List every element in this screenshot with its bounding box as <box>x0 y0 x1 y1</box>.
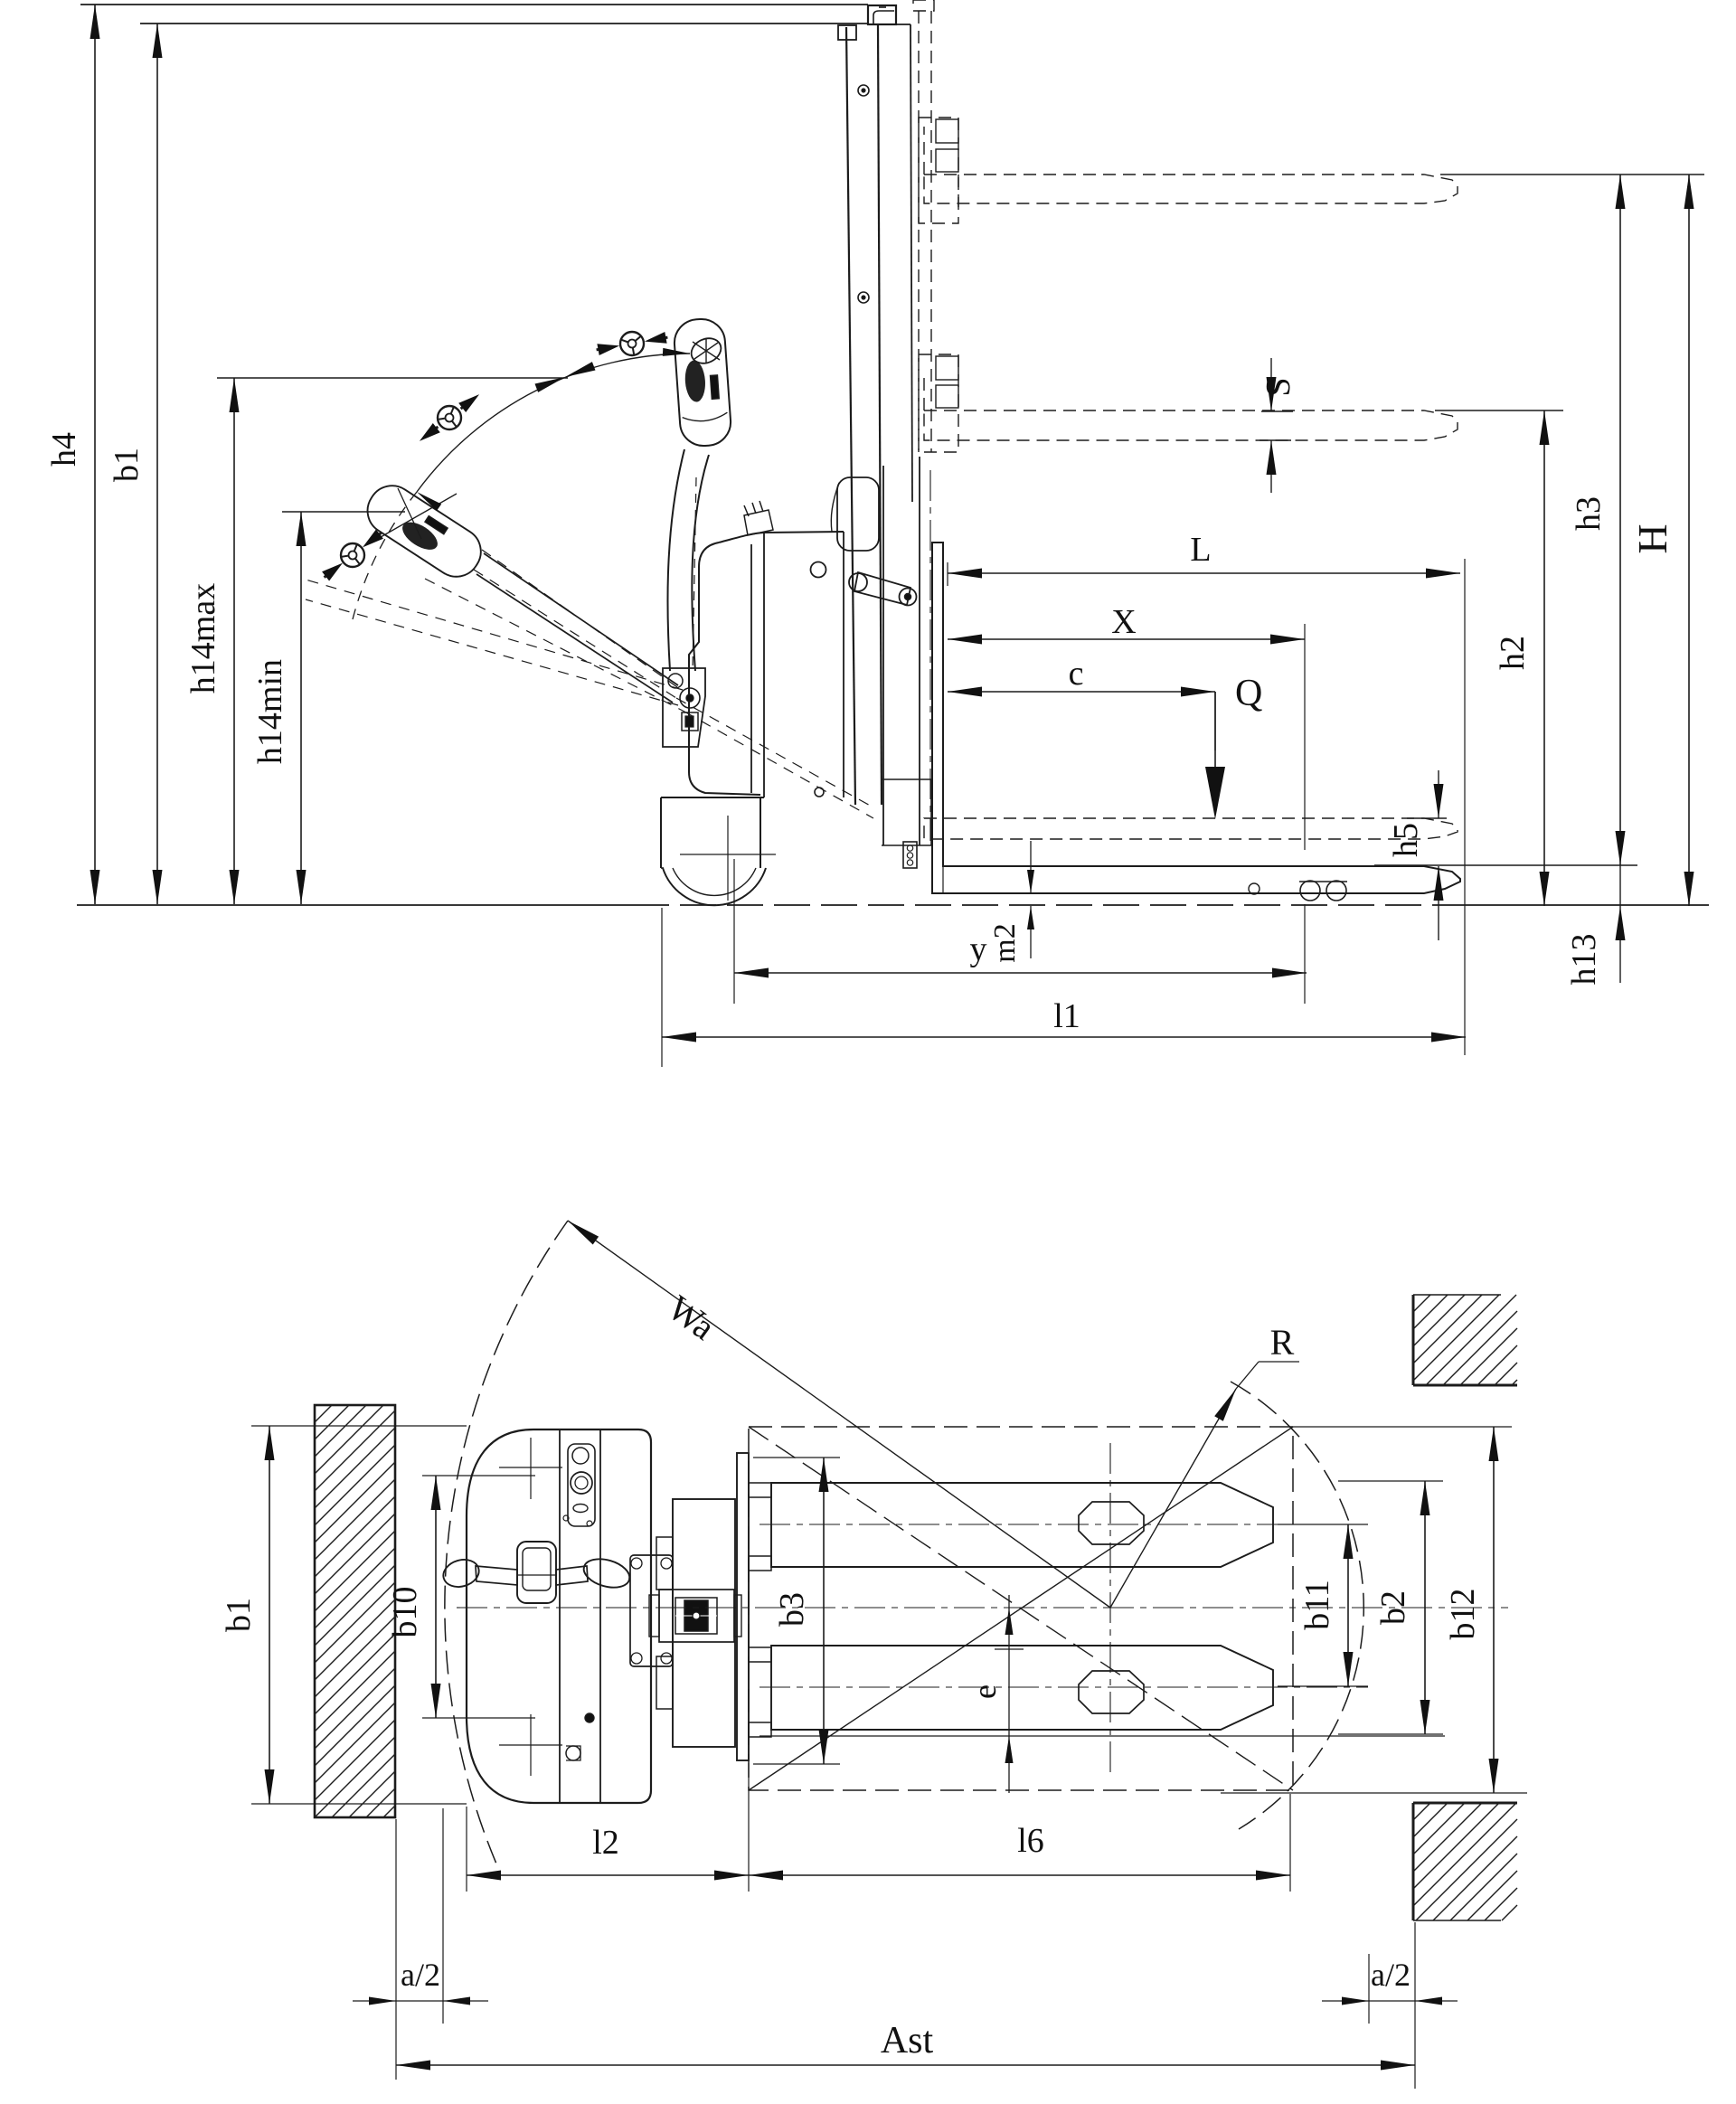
svg-text:l6: l6 <box>1017 1822 1044 1860</box>
svg-text:S: S <box>1260 377 1297 396</box>
svg-text:H: H <box>1629 524 1675 553</box>
svg-text:b1: b1 <box>108 448 146 482</box>
svg-text:m2: m2 <box>988 923 1022 962</box>
svg-text:l2: l2 <box>592 1824 619 1862</box>
svg-text:h13: h13 <box>1565 934 1603 986</box>
svg-text:h2: h2 <box>1494 636 1532 670</box>
svg-text:Q: Q <box>1235 673 1262 714</box>
svg-text:b1: b1 <box>220 1598 258 1632</box>
svg-text:h4: h4 <box>45 432 83 467</box>
svg-text:b3: b3 <box>773 1592 811 1627</box>
svg-text:l1: l1 <box>1053 997 1080 1035</box>
svg-text:b10: b10 <box>386 1587 424 1638</box>
svg-text:Ast: Ast <box>881 2020 934 2062</box>
svg-text:h3: h3 <box>1570 496 1608 531</box>
svg-text:h14min: h14min <box>251 659 289 764</box>
svg-text:h14max: h14max <box>184 583 222 693</box>
svg-text:e: e <box>967 1684 1003 1699</box>
svg-text:b2: b2 <box>1374 1590 1412 1625</box>
svg-text:b12: b12 <box>1444 1589 1482 1640</box>
svg-text:L: L <box>1190 531 1211 569</box>
svg-text:b11: b11 <box>1298 1580 1336 1630</box>
svg-text:y: y <box>970 930 987 968</box>
svg-text:R: R <box>1270 1322 1295 1363</box>
svg-text:h5: h5 <box>1387 823 1425 857</box>
svg-text:a/2: a/2 <box>1371 1957 1410 1993</box>
svg-text:c: c <box>1069 655 1084 693</box>
svg-text:X: X <box>1111 603 1136 641</box>
svg-text:a/2: a/2 <box>401 1957 440 1993</box>
